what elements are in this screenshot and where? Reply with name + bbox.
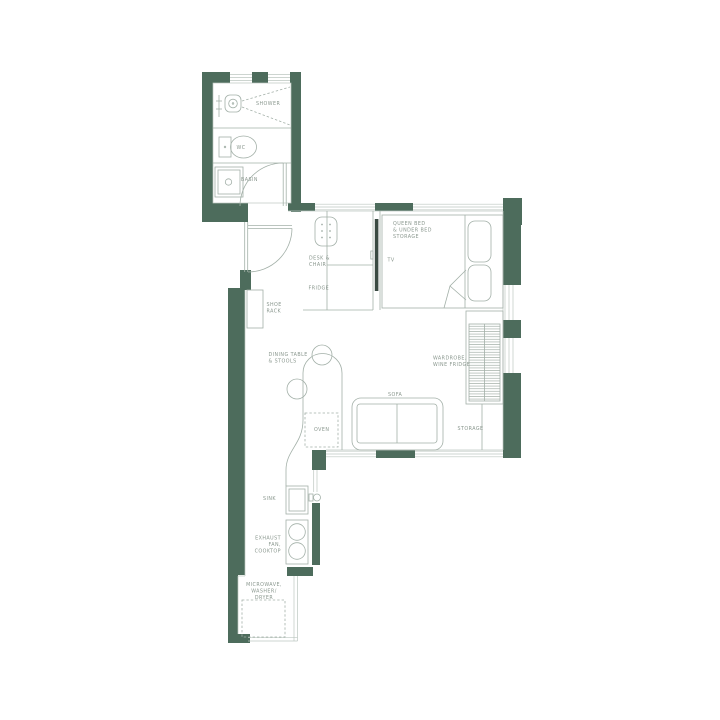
floorplan-canvas: SHOWER WC BASIN DESK & CHAIR FRIDGE QUEE… <box>0 0 720 720</box>
wall-bathroom-right <box>291 72 301 212</box>
shower-spray-bottom <box>242 107 290 125</box>
label-desk-1: DESK & <box>309 256 330 262</box>
wall-kitchen-right <box>312 503 320 565</box>
wall-top-right-corner <box>503 198 522 225</box>
wardrobe-unit <box>466 311 503 404</box>
tv-screen <box>375 219 379 291</box>
label-sink: SINK <box>263 496 276 502</box>
desk-chair <box>315 217 337 246</box>
label-wardrobe-2: WINE FRIDGE <box>433 362 470 368</box>
label-oven: OVEN <box>314 427 329 433</box>
wall-right-a <box>503 225 521 285</box>
label-microwave-3: DRYER <box>255 595 273 601</box>
stool-2 <box>287 379 307 399</box>
window-right-2 <box>505 338 513 373</box>
window-bottom-1 <box>326 451 376 457</box>
shower-spray-top <box>242 87 290 101</box>
furniture <box>213 95 503 564</box>
blanket-fold <box>450 270 466 300</box>
label-wardrobe-1: WARDROBE, <box>433 356 467 362</box>
label-tv: TV <box>387 258 395 264</box>
cooktop-unit <box>286 520 308 564</box>
label-basin: BASIN <box>241 177 258 183</box>
wall-bathroom-top-b <box>252 72 268 83</box>
burner-2 <box>289 543 306 560</box>
shower-fixture <box>216 95 241 117</box>
wall-bathroom-left <box>202 72 213 215</box>
label-dining-2: & STOOLS <box>269 359 297 365</box>
window-top-1 <box>315 204 375 210</box>
wall-bathroom-top-a <box>202 72 230 83</box>
window-bath-2 <box>268 75 290 81</box>
wall-right-b <box>503 320 521 338</box>
sofa <box>352 398 443 450</box>
chair-dots <box>321 224 331 239</box>
bathroom-door <box>240 163 286 206</box>
label-desk-2: CHAIR <box>309 262 326 268</box>
boundary-utility-nook <box>248 470 317 641</box>
label-microwave-1: MICROWAVE, <box>246 582 282 588</box>
label-cooktop-3: COOKTOP <box>255 549 281 555</box>
wall-entry-stub <box>240 270 251 290</box>
wall-right-c <box>503 373 521 458</box>
label-cooktop-1: EXHAUST <box>255 536 281 542</box>
labels: SHOWER WC BASIN DESK & CHAIR FRIDGE QUEE… <box>237 101 484 601</box>
wall-corridor-left-narrow <box>228 575 238 642</box>
basin-fixture <box>215 167 243 197</box>
wall-bottom-left-post <box>312 450 326 470</box>
label-shoe-rack-2: RACK <box>267 309 282 315</box>
wall-corridor-left <box>228 288 245 575</box>
label-dining-1: DINING TABLE <box>269 352 308 358</box>
label-shower: SHOWER <box>256 101 280 107</box>
floorplan-svg: SHOWER WC BASIN DESK & CHAIR FRIDGE QUEE… <box>0 0 720 720</box>
shoe-rack <box>247 290 263 328</box>
label-shoe-rack-1: SHOE <box>267 302 282 308</box>
pillow-2 <box>468 265 491 301</box>
wall-kitchen-bottom <box>287 567 313 576</box>
label-cooktop-2: FAN, <box>268 542 281 548</box>
windows <box>213 75 513 642</box>
label-bed-1: QUEEN BED <box>393 221 426 227</box>
window-right-1 <box>505 285 513 320</box>
window-bottom-2 <box>415 451 503 457</box>
label-bed-2: & UNDER BED <box>393 228 432 234</box>
label-microwave-2: WASHER/ <box>251 588 277 594</box>
wall-bathroom-bottom <box>202 203 248 222</box>
label-storage: STORAGE <box>458 426 484 432</box>
wall-corridor-bottom-l <box>228 634 250 643</box>
faucet <box>309 494 313 501</box>
window-bath-1 <box>230 75 252 81</box>
label-bed-3: STORAGE <box>393 234 419 240</box>
label-sofa: SOFA <box>388 392 402 398</box>
wall-main-top-a <box>288 203 315 211</box>
burner-1 <box>289 524 306 541</box>
label-wc: WC <box>237 145 246 151</box>
pillow-1 <box>468 221 491 262</box>
wall-main-top-b <box>375 203 413 211</box>
label-fridge: FRIDGE <box>309 286 330 292</box>
wall-main-bottom <box>376 450 415 458</box>
window-top-2 <box>413 204 503 210</box>
microwave-washer-dryer <box>242 600 285 637</box>
entry-door <box>245 222 292 272</box>
